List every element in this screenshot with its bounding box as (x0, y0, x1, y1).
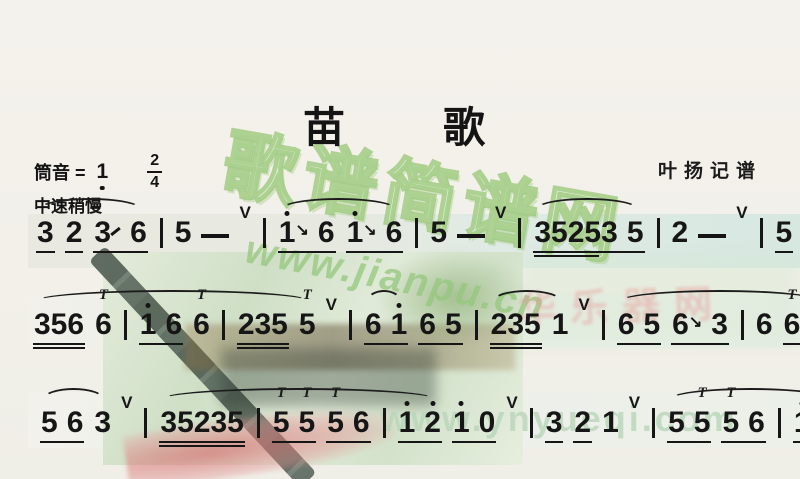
note: 5T (327, 408, 344, 438)
time-numerator: 2 (147, 152, 162, 173)
note: 6↘ (672, 310, 702, 340)
token-group: 5V (413, 204, 523, 248)
note-digit: 235 (491, 310, 541, 340)
slur-group: 3566T166T2355T (33, 290, 316, 340)
note-digit: 6 (748, 408, 765, 438)
note-digit: 6 (67, 408, 84, 438)
dayin-ornament: T (277, 385, 286, 402)
note: 5 (643, 310, 660, 340)
note-digit: 6 (386, 218, 403, 248)
note-digit: 6 (672, 310, 689, 340)
slide-down-icon: ↘ (689, 315, 702, 331)
note: 6 (756, 310, 773, 340)
note-digit: 1 (347, 218, 364, 248)
beam-group: 3 (545, 408, 564, 438)
note: 2 (424, 408, 441, 438)
note-digit: 1 (140, 310, 157, 340)
note-digit: 5 (668, 408, 685, 438)
beam-group: 55T (667, 408, 711, 438)
score-line-3: 563V352355T5T5T61210V321V55T5T61210 (40, 386, 774, 438)
barline (760, 218, 763, 248)
title-char-2: 歌 (443, 94, 485, 155)
note-digit: 2 (424, 408, 441, 438)
beam-group: 1↘6 (346, 218, 404, 248)
note: 6 (419, 310, 436, 340)
note: 1 (140, 310, 157, 340)
dash-note (457, 234, 485, 239)
note-digit: 35235 (160, 408, 243, 438)
note-digit: 3 (546, 408, 563, 438)
time-signature: 2 4 (147, 152, 162, 193)
barline (415, 218, 418, 248)
note-digit: 5 (430, 218, 447, 248)
note-digit: 1 (552, 310, 569, 340)
breath-mark: V (239, 204, 250, 221)
barline (652, 408, 655, 438)
note: 1 (794, 408, 800, 438)
note: 6 (318, 218, 335, 248)
note: 5 (776, 218, 793, 248)
beam-group: 352535 (533, 218, 644, 248)
note: 35235 (160, 408, 243, 438)
dayin-ornament: T (197, 287, 206, 304)
barline (257, 408, 260, 438)
note-digit: 5T (299, 408, 316, 438)
note: 6 (165, 310, 182, 340)
beam-group: 235 (490, 310, 542, 340)
note-digit: 2 (66, 218, 83, 248)
slide-down-icon: ↘ (363, 223, 376, 239)
slide-up-icon (110, 227, 121, 236)
note-digit: 6 (165, 310, 182, 340)
note: 5 (445, 310, 462, 340)
note-digit: 5 (41, 408, 58, 438)
note-digit: 5T (273, 408, 290, 438)
barline (160, 218, 163, 248)
note-digit: 6 (756, 310, 773, 340)
note-digit: 235 (238, 310, 288, 340)
note-digit: 5T (722, 408, 739, 438)
beam-group: 2 (65, 218, 84, 248)
note: 6 (386, 218, 403, 248)
note-digit: 5T (299, 310, 316, 340)
dayin-ornament: T (99, 287, 108, 304)
octave-dot (430, 401, 435, 406)
note: 5T (694, 408, 711, 438)
note-digit: 6 (365, 310, 382, 340)
note: 235 (238, 310, 288, 340)
note: 1 (391, 310, 408, 340)
slur-group: 55T5T612 (667, 388, 800, 438)
note: 5T (299, 310, 316, 340)
slur-group: 2351 (490, 290, 569, 340)
note: 5T (299, 408, 316, 438)
note-digit: 5 (445, 310, 462, 340)
barline (778, 408, 781, 438)
beam-group: 12 (793, 408, 800, 438)
note-digit: 6 (318, 218, 335, 248)
note: 2 (574, 408, 591, 438)
note: 5T (273, 408, 290, 438)
sheet-music-page: 歌谱简谱网 www.jianpu.cn 华乐器网 www.ynyueqi.com… (0, 0, 800, 479)
note: 235 (491, 310, 541, 340)
octave-dot (285, 211, 290, 216)
barline (475, 310, 478, 340)
beam-group: 6↘3 (671, 310, 729, 340)
score-line-2: 3566T166T2355TV61652351V656↘366T1 (33, 288, 777, 340)
beam-group: 56 (40, 408, 84, 438)
key-signature-row: 筒音 = 1 2 4 (34, 152, 162, 193)
note-digit: 6 (419, 310, 436, 340)
note: 6 (365, 310, 382, 340)
note-digit: 1 (794, 408, 800, 438)
octave-dot (404, 401, 409, 406)
note: 5 (627, 218, 644, 248)
note-digit: 6 (353, 408, 370, 438)
note: 5 (430, 218, 447, 248)
beam-group: 5 (775, 218, 794, 248)
note: 1↘ (347, 218, 377, 248)
octave-dot (396, 303, 401, 308)
note: 3 (711, 310, 728, 340)
slur-group: 656↘366T1 (617, 290, 800, 340)
dayin-ornament: T (698, 385, 707, 402)
token-group: V (121, 394, 149, 438)
token-group: 5V (158, 204, 268, 248)
note-digit: 1 (391, 310, 408, 340)
breath-mark: V (578, 296, 589, 313)
octave-dot (352, 211, 357, 216)
note-digit: 0 (479, 408, 496, 438)
beam-group: 16 (139, 310, 183, 340)
barline (602, 310, 605, 340)
note-digit: 3 (94, 218, 111, 248)
note-digit: 1 (453, 408, 470, 438)
token-group: 10V321V (452, 394, 657, 438)
note-digit: 2 (672, 218, 689, 248)
note: 6 (748, 408, 765, 438)
score-line-1: 32365V1↘61↘65V3525352V55T5T32 (36, 196, 776, 248)
beam-group: 10 (452, 408, 496, 438)
note-digit: 6T (193, 310, 210, 340)
note: 3 (94, 218, 121, 248)
note-digit: 35253 (534, 218, 617, 248)
slur-group: 352535 (533, 198, 644, 248)
note: 2 (672, 218, 689, 248)
barline (741, 310, 744, 340)
beam-group: 12 (398, 408, 442, 438)
note: 356 (34, 310, 84, 340)
note: 35253 (534, 218, 617, 248)
key-prefix: 筒音 = (34, 159, 86, 185)
beam-subline (534, 255, 599, 258)
song-title: 苗 歌 (303, 94, 485, 155)
beam-group: 6T1 (783, 310, 800, 340)
breath-mark: V (736, 204, 747, 221)
token-group: V (326, 296, 354, 340)
beam-group: 65 (617, 310, 661, 340)
slur-group: 563 (40, 388, 111, 438)
barline (530, 408, 533, 438)
note: 6 (67, 408, 84, 438)
dayin-ornament: T (303, 287, 312, 304)
barline (222, 310, 225, 340)
slur-group: 61 (364, 290, 408, 340)
breath-mark: V (495, 204, 506, 221)
note-digit: 6 (130, 218, 147, 248)
beam-group: 356 (33, 310, 85, 340)
note-digit: 6T (784, 310, 800, 340)
token-group: 2V55T5T32 (655, 204, 800, 248)
time-denominator: 4 (150, 173, 159, 192)
beam-group: 36 (93, 218, 147, 248)
note-digit: 356 (34, 310, 84, 340)
note-digit: 5T (327, 408, 344, 438)
beam-group: 65 (418, 310, 462, 340)
note: 1 (453, 408, 470, 438)
barline (263, 218, 266, 248)
dash-note (201, 234, 229, 239)
slur-group: 1↘61↘6 (278, 198, 404, 248)
note: 6 (130, 218, 147, 248)
note: 6T (95, 310, 112, 340)
token-group: 65 (418, 310, 479, 340)
note-digit: 3 (37, 218, 54, 248)
note-digit: 1 (279, 218, 296, 248)
barline (383, 408, 386, 438)
token-group: V (578, 296, 606, 340)
note: 1↘ (279, 218, 309, 248)
note-digit: 1 (399, 408, 416, 438)
note: 5 (668, 408, 685, 438)
breath-mark: V (326, 296, 337, 313)
dayin-ornament: T (787, 287, 796, 304)
dash-note (698, 234, 726, 239)
slur-group: 352355T5T5T612 (159, 388, 442, 438)
note: 3 (94, 408, 111, 438)
dayin-ornament: T (331, 385, 340, 402)
barline (657, 218, 660, 248)
beam-group: 61 (364, 310, 408, 340)
barline (349, 310, 352, 340)
barline (144, 408, 147, 438)
slide-down-icon: ↘ (295, 223, 308, 239)
beam-group: 235 (237, 310, 289, 340)
breath-mark: V (121, 394, 132, 411)
beam-group: 5T5T (272, 408, 316, 438)
title-char-1: 苗 (303, 94, 345, 155)
note: 6T (784, 310, 800, 340)
beam-group: 5T6 (721, 408, 765, 438)
note: 6 (353, 408, 370, 438)
breath-mark: V (629, 394, 640, 411)
beam-group: 35235 (159, 408, 244, 438)
note: 3 (37, 218, 54, 248)
note: 1 (399, 408, 416, 438)
beam-group: 5T6 (326, 408, 370, 438)
transcriber-credit: 叶扬记谱 (658, 156, 762, 183)
slur-group: 3236 (36, 198, 148, 248)
barline (124, 310, 127, 340)
note-digit: 1 (602, 408, 619, 438)
beam-group: 3 (36, 218, 55, 248)
note-digit: 6T (95, 310, 112, 340)
tonic-note-low-octave: 1 (97, 160, 109, 184)
octave-dot (146, 303, 151, 308)
note: 5 (41, 408, 58, 438)
note: 3 (546, 408, 563, 438)
beam-group: 2 (573, 408, 592, 438)
note: 5 (175, 218, 192, 248)
breath-mark: V (506, 394, 517, 411)
note-digit: 3 (711, 310, 728, 340)
note: 5T (722, 408, 739, 438)
note: 6 (618, 310, 635, 340)
note-digit: 5 (175, 218, 192, 248)
note-digit: 5T (694, 408, 711, 438)
note-digit: 2 (574, 408, 591, 438)
note: 1 (602, 408, 619, 438)
note-digit: 5 (776, 218, 793, 248)
note: 1 (552, 310, 569, 340)
note-digit: 5 (627, 218, 644, 248)
dayin-ornament: T (302, 385, 311, 402)
note: 6T (193, 310, 210, 340)
note-digit: 3 (94, 408, 111, 438)
note: 0 (479, 408, 496, 438)
octave-dot (459, 401, 464, 406)
note-digit: 5 (643, 310, 660, 340)
dayin-ornament: T (726, 385, 735, 402)
barline (518, 218, 521, 248)
beam-group: 1↘6 (278, 218, 336, 248)
note: 2 (66, 218, 83, 248)
note-digit: 6 (618, 310, 635, 340)
